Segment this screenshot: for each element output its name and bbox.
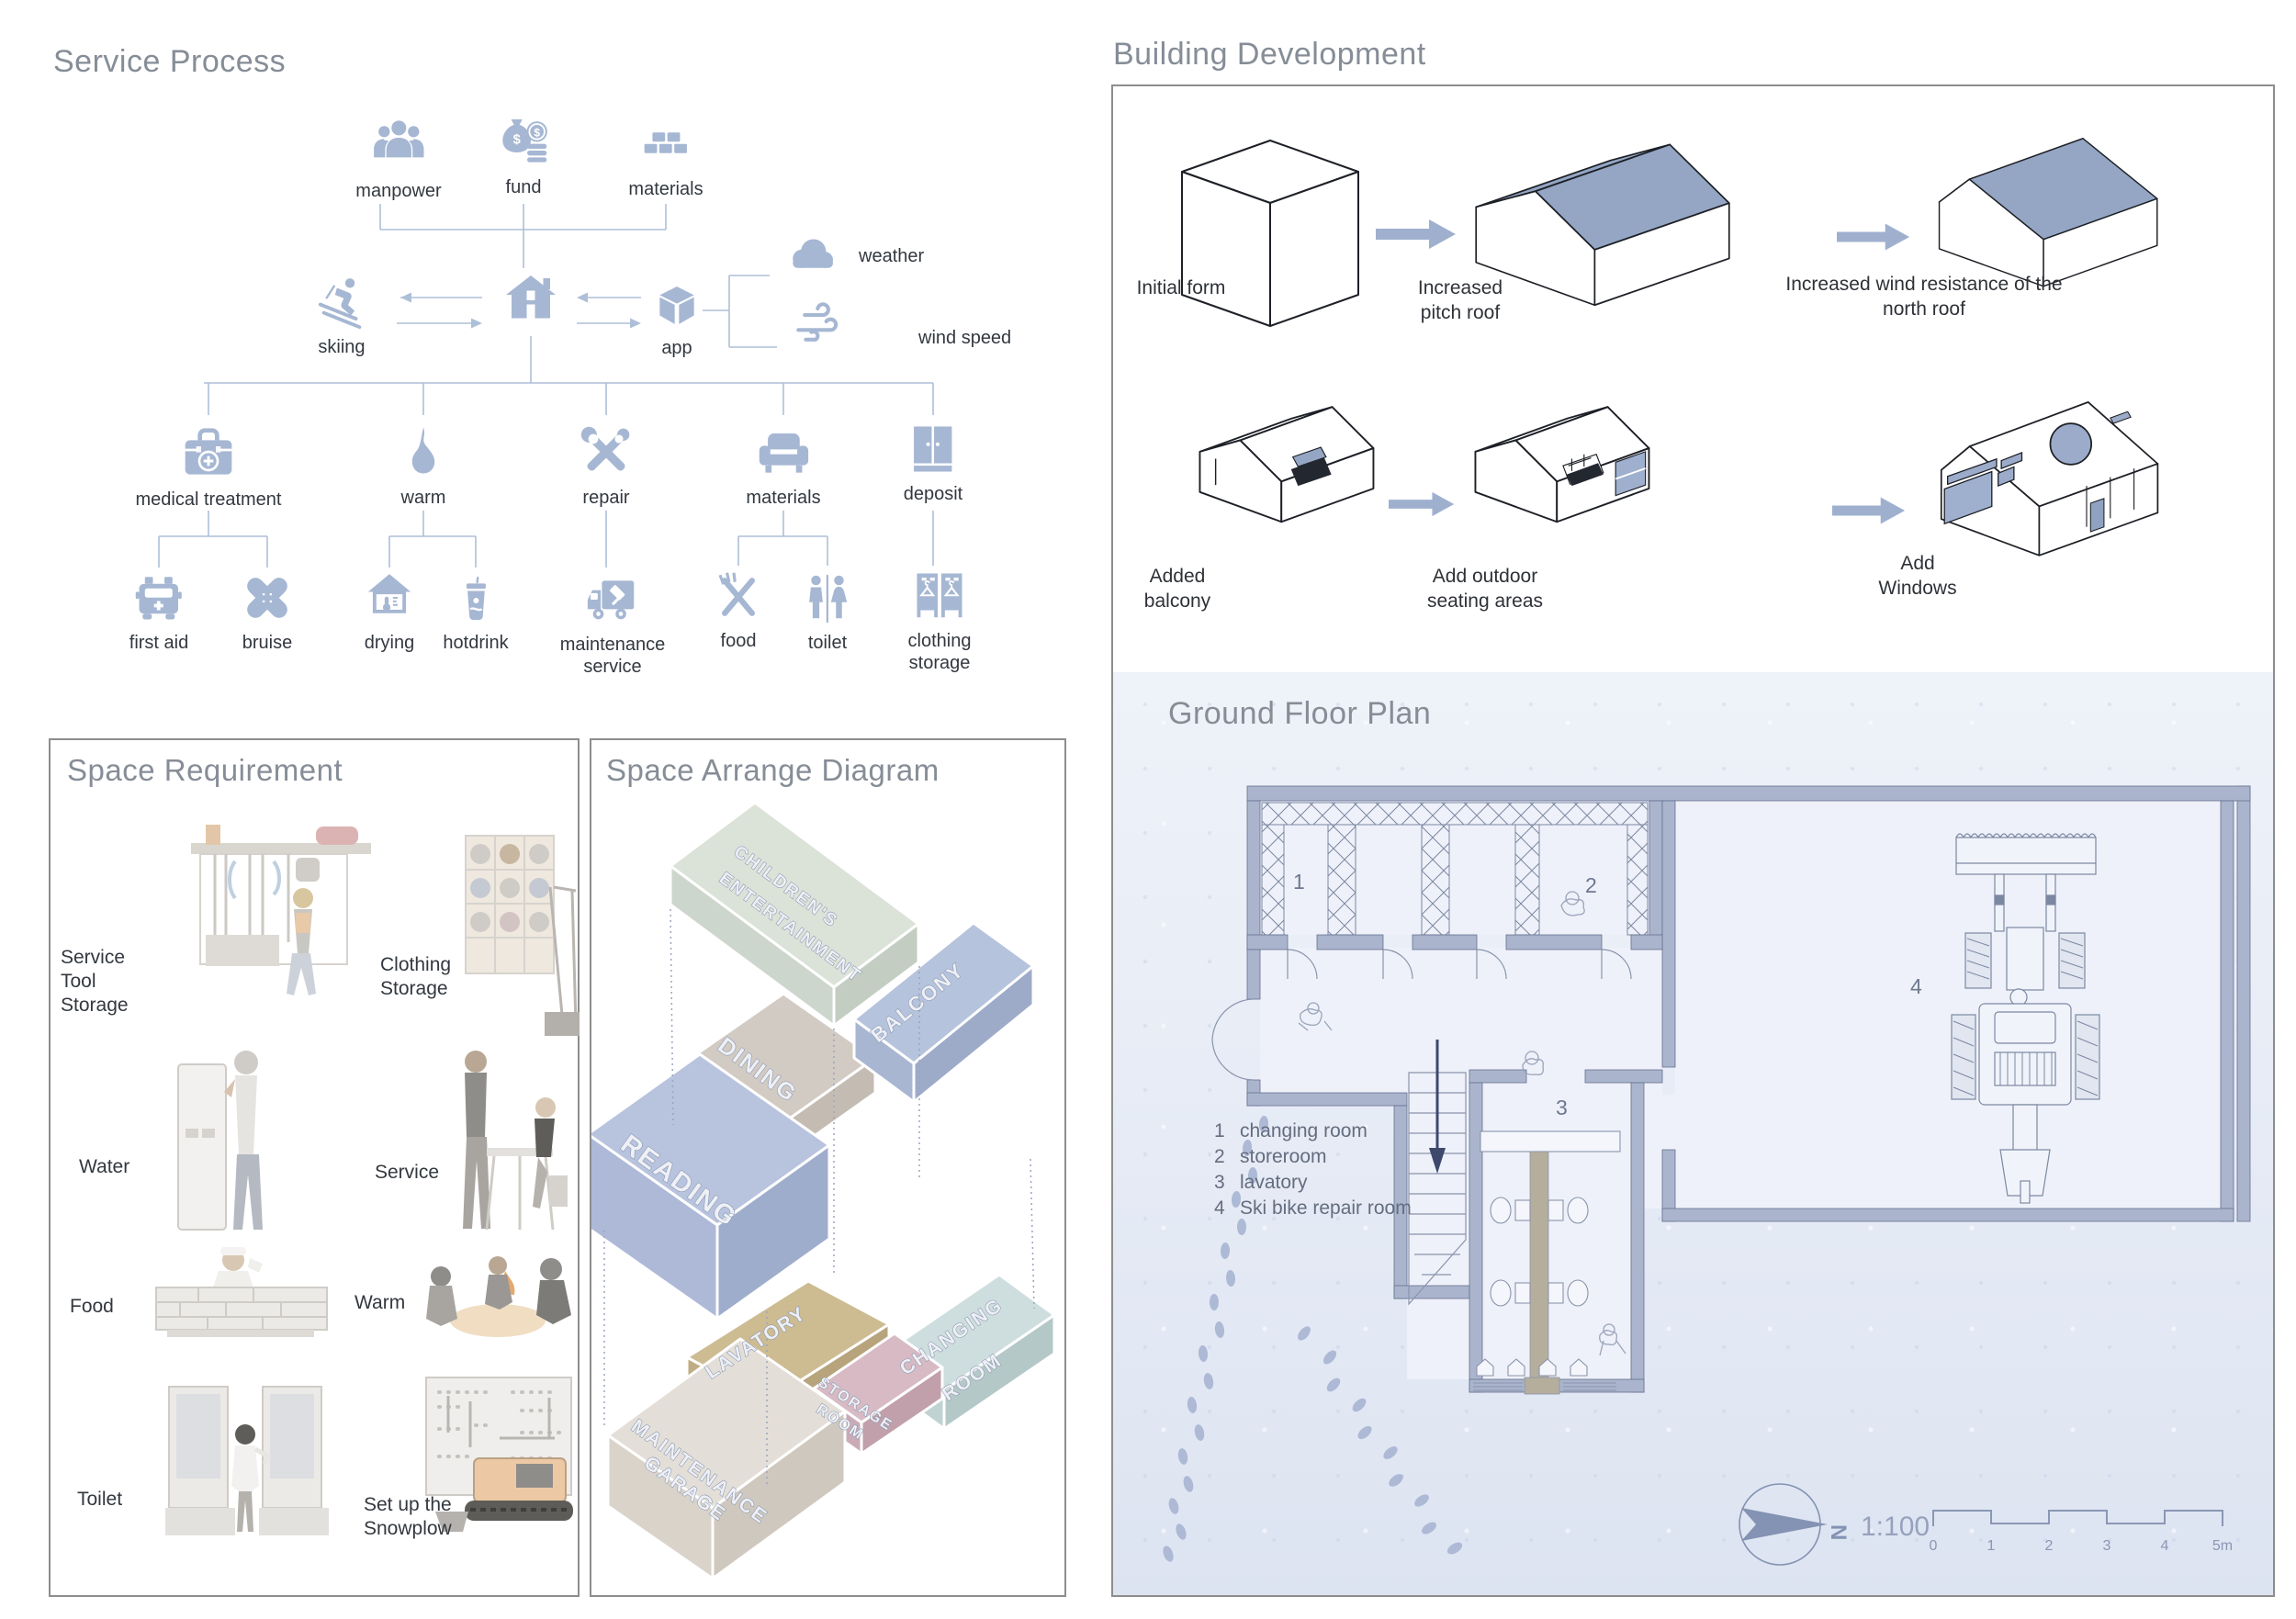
medical-treatment-label: medical treatment — [136, 489, 282, 511]
house-icon — [498, 270, 564, 336]
scale-tick-0: 0 — [1930, 1538, 1938, 1554]
restroom-icon — [800, 571, 855, 626]
legend-row-2: 2storeroom — [1214, 1144, 1412, 1170]
wind-speed-label: wind speed — [918, 328, 1011, 349]
legend-label-4: Ski bike repair room — [1240, 1197, 1412, 1219]
scale-bar: 0 1 2 3 4 5m — [1930, 1511, 2234, 1554]
water-photo — [171, 1040, 281, 1238]
repair-label: repair — [582, 487, 629, 509]
node-first-aid: first aid — [129, 571, 188, 654]
cloud-icon — [782, 228, 838, 283]
service-photo — [439, 1047, 572, 1235]
node-skiing: skiing — [313, 274, 370, 358]
scale-tick-5: 5m — [2212, 1538, 2233, 1554]
legend-row-3: 3lavatory — [1214, 1170, 1412, 1196]
compass: N — [1739, 1484, 1851, 1565]
legend-num-2: 2 — [1214, 1144, 1240, 1170]
node-hotdrink: hotdrink — [443, 575, 508, 654]
legend-label-2: storeroom — [1240, 1146, 1327, 1167]
materials-input-label: materials — [628, 178, 703, 200]
space-arrange-title: Space Arrange Diagram — [606, 753, 940, 788]
arrow-4-icon — [1832, 494, 1906, 527]
clothing-storage-label: clothing storage — [889, 630, 990, 674]
flame-icon — [394, 422, 453, 481]
node-toilet: toilet — [800, 571, 855, 654]
room-number-3: 3 — [1556, 1096, 1568, 1119]
node-wind — [790, 296, 841, 347]
step-windows-label: Add Windows — [1863, 551, 1973, 601]
node-materials-service: materials — [746, 422, 820, 509]
water-label: Water — [79, 1155, 143, 1179]
step-seating-label: Add outdoor seating areas — [1416, 564, 1554, 613]
step-initial-form-label: Initial form — [1135, 275, 1227, 300]
node-deposit: deposit — [904, 421, 963, 505]
toilet-label: toilet — [808, 632, 847, 654]
clothing-storage-photo — [462, 832, 580, 1043]
node-materials-input: materials — [628, 118, 703, 200]
tools-icon — [577, 422, 636, 481]
materials-service-label: materials — [746, 487, 820, 509]
drying-label: drying — [365, 632, 414, 654]
presentation-board: Service Process manpower $$ fund materia… — [0, 0, 2296, 1619]
room-number-4: 4 — [1910, 974, 1922, 998]
fund-label: fund — [506, 176, 542, 198]
arrow-1-icon — [1376, 217, 1457, 252]
bandage-icon — [239, 569, 296, 626]
warm-label: Warm — [355, 1291, 413, 1315]
arrow-3-icon — [1389, 489, 1455, 520]
clothing-storage-photo-label: Clothing Storage — [380, 953, 468, 1001]
scale-label: 1:100 — [1861, 1512, 1930, 1542]
food-label: Food — [70, 1295, 125, 1319]
node-hut — [498, 270, 564, 336]
step-pitch-roof-label: Increased pitch roof — [1401, 275, 1520, 325]
service-label: Service — [375, 1161, 448, 1185]
node-manpower: manpower — [355, 116, 441, 202]
food-label: food — [721, 630, 757, 652]
scale-tick-4: 4 — [2161, 1538, 2169, 1554]
node-warm: warm — [394, 422, 453, 509]
service-truck-icon — [584, 571, 641, 628]
hotdrink-label: hotdrink — [443, 632, 508, 654]
initial-form-house — [1178, 133, 1362, 344]
svg-text:$: $ — [513, 133, 521, 148]
snowplow-label: Set up the Snowplow — [364, 1493, 474, 1541]
food-photo — [134, 1247, 342, 1339]
node-weather — [782, 228, 838, 283]
first-aid-label: first aid — [129, 632, 188, 654]
bricks-icon — [638, 118, 693, 173]
node-drying: drying — [361, 569, 418, 654]
room-number-1: 1 — [1293, 870, 1305, 894]
wardrobe-icon — [905, 421, 962, 478]
step-balcony-label: Added balcony — [1130, 564, 1225, 613]
skiing-label: skiing — [318, 336, 365, 358]
legend-num-3: 3 — [1214, 1170, 1240, 1196]
building-development-title: Building Development — [1113, 37, 1426, 73]
legend-row-4: 4Ski bike repair room — [1214, 1196, 1412, 1221]
service-tool-storage-label: Service Tool Storage — [61, 946, 162, 1017]
service-tool-storage-photo — [178, 825, 386, 1041]
first-aid-kit-icon — [179, 424, 238, 483]
people-icon — [369, 116, 428, 174]
compass-n-label: N — [1826, 1524, 1851, 1540]
money-bag-icon: $$ — [494, 112, 553, 171]
node-clothing-storage: clothing storage — [889, 568, 990, 674]
legend-row-1: 1changing room — [1214, 1119, 1412, 1144]
node-medical: medical treatment — [121, 424, 296, 511]
scale-tick-1: 1 — [1987, 1538, 1996, 1554]
legend-num-4: 4 — [1214, 1196, 1240, 1221]
cube-icon — [651, 280, 703, 332]
room-number-2: 2 — [1585, 873, 1597, 897]
fork-knife-icon — [711, 569, 766, 624]
cup-icon — [450, 575, 501, 626]
toilet-photo-label: Toilet — [77, 1488, 141, 1512]
arrow-2-icon — [1837, 220, 1910, 253]
app-label: app — [661, 337, 692, 359]
bruise-label: bruise — [242, 632, 292, 654]
warm-photo — [413, 1240, 580, 1346]
maintenance-service-label: maintenance service — [544, 634, 681, 678]
space-arrange-diagram: CHILDREN'S ENTERTAINMENT DINING BALCONY … — [591, 790, 1064, 1595]
legend-label-3: lavatory — [1240, 1172, 1308, 1193]
plan-legend: 1changing room 2storeroom 3lavatory 4Ski… — [1214, 1119, 1412, 1221]
space-requirement-title: Space Requirement — [67, 753, 343, 788]
drying-house-icon — [361, 569, 418, 626]
node-maintenance: maintenance service — [544, 571, 681, 678]
legend-label-1: changing room — [1240, 1120, 1367, 1141]
toilet-photo — [156, 1381, 334, 1539]
step-wind-roof-label: Increased wind resistance of the north r… — [1782, 272, 2066, 321]
node-app: app — [651, 280, 703, 359]
scale-tick-2: 2 — [2045, 1538, 2054, 1554]
ambulance-icon — [131, 571, 186, 626]
lockers-icon — [911, 568, 968, 624]
node-bruise: bruise — [239, 569, 296, 654]
node-fund: $$ fund — [494, 112, 553, 198]
sofa-icon — [754, 422, 813, 481]
node-food: food — [711, 569, 766, 652]
warm-label: warm — [401, 487, 446, 509]
deposit-label: deposit — [904, 483, 963, 505]
legend-num-1: 1 — [1214, 1119, 1240, 1144]
scale-tick-3: 3 — [2103, 1538, 2111, 1554]
weather-label: weather — [859, 246, 924, 267]
node-repair: repair — [577, 422, 636, 509]
skier-icon — [313, 274, 370, 331]
svg-text:$: $ — [534, 127, 540, 140]
manpower-label: manpower — [355, 180, 441, 202]
wind-icon — [790, 296, 841, 347]
